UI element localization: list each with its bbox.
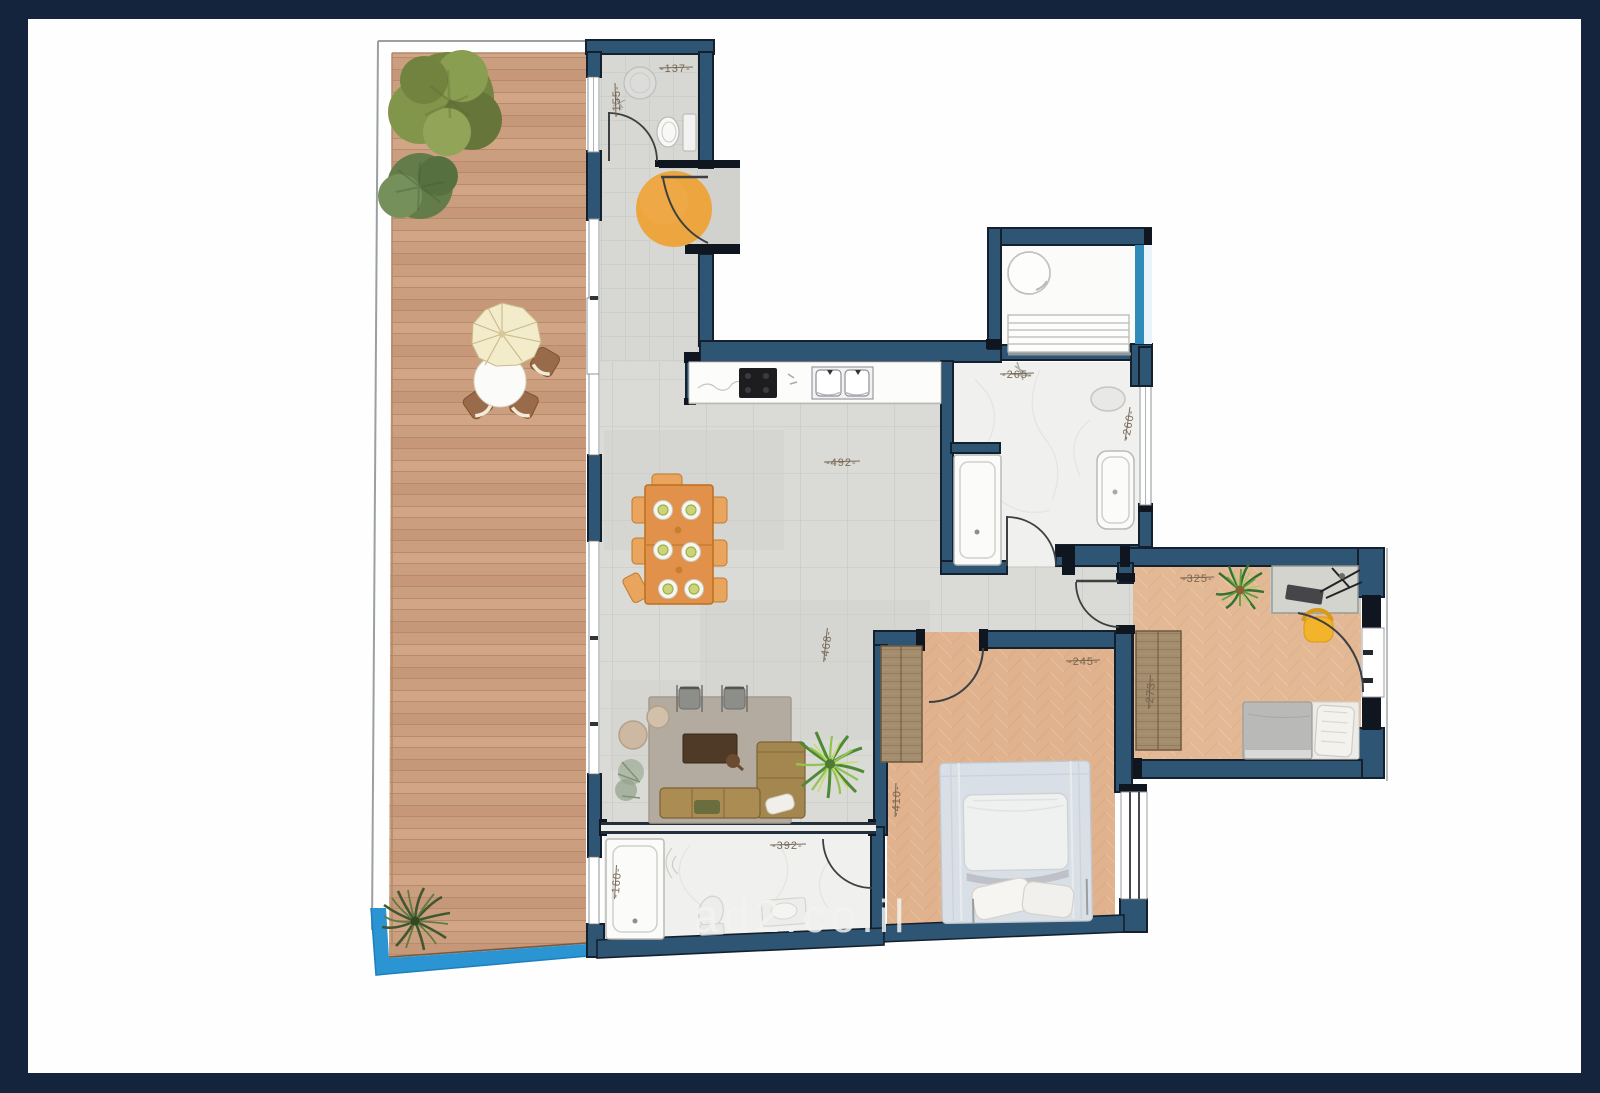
- svg-text:-245-: -245-: [1068, 656, 1099, 668]
- svg-text:-137-: -137-: [660, 63, 691, 75]
- svg-text:-155-: -155-: [611, 85, 623, 116]
- svg-text:ad2.co.il: ad2.co.il: [693, 890, 909, 942]
- svg-text:-492-: -492-: [826, 457, 857, 469]
- svg-text:-265-: -265-: [1002, 369, 1033, 381]
- svg-text:-410-: -410-: [890, 785, 904, 816]
- svg-text:-392-: -392-: [772, 840, 803, 852]
- svg-text:-325-: -325-: [1182, 573, 1213, 585]
